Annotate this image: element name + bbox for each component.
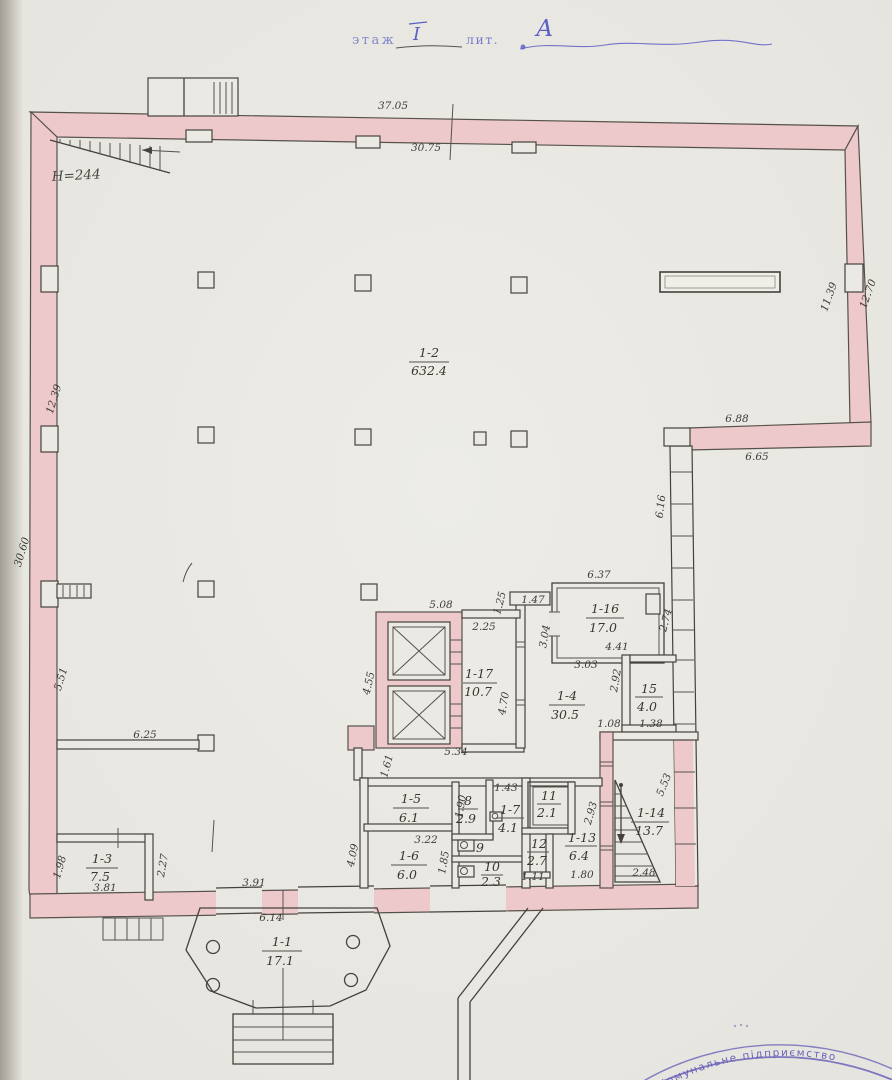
column [355,275,371,291]
svg-text:1-5: 1-5 [401,791,421,806]
room-label-9: 9 [476,840,484,855]
rooms-left-wall [360,778,368,888]
dim-elev-top: 5.08 [429,599,453,611]
dim-porch-width: 6.14 [259,912,282,924]
svg-text:7.5: 7.5 [90,869,110,884]
column [511,277,527,293]
wall-12-13 [546,834,553,888]
title-lit-word: лит. [466,32,499,47]
wall-right-lower-pink [674,740,695,886]
svg-text:2.9: 2.9 [455,811,476,826]
column [198,735,214,751]
dim-r5-bottom: 3.22 [414,834,438,846]
svg-text:2.3: 2.3 [480,874,501,889]
wall-under-8-9 [452,834,493,840]
wall-room8-right [486,780,493,838]
elevator-shaft-2 [388,686,450,744]
wall-stub-left [57,584,91,598]
dim-notch-top: 6.88 [725,413,749,425]
svg-text:1-16: 1-16 [591,601,619,616]
column [198,427,214,443]
dim-porch-top: 3.91 [242,877,265,889]
svg-text:1-14: 1-14 [637,805,665,820]
dim-notch-bottom: 6.65 [745,451,769,463]
title-floor-word: этаж [352,33,396,48]
svg-text:10.7: 10.7 [464,684,492,699]
wall-left [29,112,57,913]
svg-text:6.4: 6.4 [569,848,589,863]
svg-text:15: 15 [641,681,657,696]
window-left-1 [41,266,58,292]
svg-text:17.0: 17.0 [589,620,617,635]
stair-top-wall [600,732,698,740]
column [474,432,486,445]
column [198,272,214,288]
window-top-1 [186,130,212,142]
title-floor-value: I [412,24,421,45]
svg-text:6.1: 6.1 [399,810,419,825]
wall-notch-end-pier [664,428,690,446]
window-top-3 [512,142,536,153]
beam-top-right [660,272,780,292]
svg-text:1-1: 1-1 [272,934,292,949]
dim-r7-top: 1.43 [494,782,518,794]
dim-top-outer: 37.05 [378,100,408,112]
title-lit-value: А [534,16,553,42]
dim-corridor-top: 2.25 [471,621,496,633]
dim-elev-bottom: 5.34 [444,746,467,758]
svg-text:9: 9 [476,840,484,855]
scanned-floor-plan-page: 37.05 30.75 12.39 30.60 11.39 12.70 6.88… [0,0,892,1080]
dim-hall4-right: 1.38 [639,718,663,730]
corridor-right-wall [516,596,525,748]
dim-jog-h: 1.47 [521,594,545,606]
svg-text:30.5: 30.5 [551,707,579,722]
dim-top-inner: 30.75 [411,142,441,154]
svg-text:6.0: 6.0 [397,867,417,882]
svg-text:8: 8 [464,793,472,808]
svg-text:1-6: 1-6 [399,848,419,863]
dim-r12-below: 1.11 [521,871,544,883]
svg-text:2.1: 2.1 [536,805,557,820]
stair-left-wall [600,732,613,888]
dim-r16-bottom: 4.41 [604,641,628,653]
window-left-2 [41,426,58,452]
wall-1-5-1-6 [364,824,456,831]
dim-r14-below: 2.48 [631,867,656,879]
room-1-16-pier [646,594,660,614]
svg-text:1-7: 1-7 [500,802,520,817]
porch-door-gap-1 [216,886,262,916]
svg-text:1-17: 1-17 [465,666,493,681]
svg-text:12: 12 [531,836,547,851]
room-label-1-17: 1-17 10.7 [463,666,497,699]
height-note: H=244 [50,166,101,185]
vestibule [148,78,238,116]
svg-text:632.4: 632.4 [411,363,447,378]
dim-r16-top: 6.37 [587,569,611,581]
elevator-block [348,592,550,752]
elevator-corner-stub [348,726,374,750]
column [361,584,377,600]
dim-hall4-left: 1.08 [597,718,621,730]
corridor-bottom-wall [462,744,524,752]
window-top-2 [356,136,380,148]
block-edge-wall [354,748,362,780]
svg-text:1-2: 1-2 [419,345,439,360]
svg-text:4.0: 4.0 [636,699,657,714]
window-left-3 [41,581,58,607]
sink-room-9 [458,840,474,851]
partition-6-25 [57,740,199,749]
svg-text:11: 11 [541,788,557,803]
svg-text:4.1: 4.1 [497,820,518,835]
svg-text:1-13: 1-13 [568,830,596,845]
window-right-1 [845,264,863,292]
wall-y830 [522,828,574,834]
dim-r13-below: 1.80 [570,869,594,881]
svg-text:10: 10 [484,859,500,874]
porch-door-gap-2 [298,885,374,915]
floor-plan-canvas: 37.05 30.75 12.39 30.60 11.39 12.70 6.88… [0,0,892,1080]
column [355,429,371,445]
svg-text:1-4: 1-4 [557,688,577,703]
dim-hall-partition: 6.25 [133,729,157,741]
column [511,431,527,447]
elevator-shaft-1 [388,622,450,680]
svg-text:1-3: 1-3 [92,851,112,866]
dim-r16-offset: 3.03 [574,659,598,671]
room-label-10: 10 2.3 [480,859,503,889]
svg-text:2.7: 2.7 [526,853,547,868]
svg-text:17.1: 17.1 [266,953,294,968]
toilet-room-10 [458,866,474,877]
wall-11-right [568,782,575,834]
svg-text:13.7: 13.7 [635,823,663,838]
column [198,581,214,597]
